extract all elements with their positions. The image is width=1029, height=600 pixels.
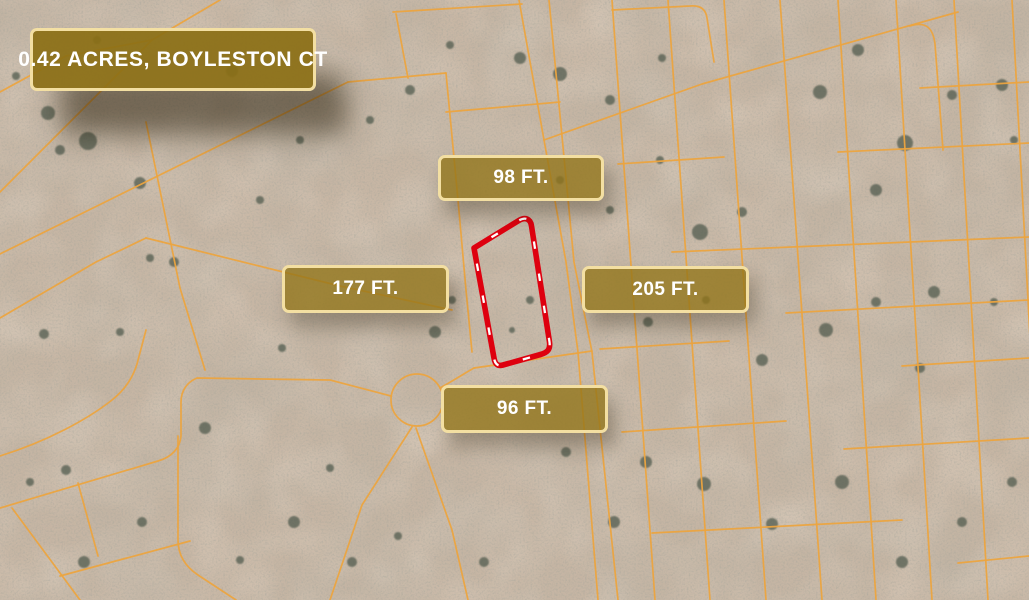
dimension-text-bottom: 96 FT.: [497, 398, 552, 420]
dimension-text-right: 205 FT.: [632, 279, 698, 301]
dimension-badge-right: 205 FT.: [582, 266, 749, 313]
dimension-badge-top: 98 FT.: [438, 155, 604, 201]
parcel-title-badge: 0.42 ACRES, BOYLESTON CT: [30, 28, 316, 91]
dimension-text-left: 177 FT.: [332, 278, 398, 300]
dimension-badge-left: 177 FT.: [282, 265, 449, 313]
dimension-text-top: 98 FT.: [493, 167, 548, 189]
land-listing-map: 0.42 ACRES, BOYLESTON CT 98 FT. 177 FT. …: [0, 0, 1029, 600]
dimension-badge-bottom: 96 FT.: [441, 385, 608, 433]
parcel-title-text: 0.42 ACRES, BOYLESTON CT: [18, 48, 328, 72]
